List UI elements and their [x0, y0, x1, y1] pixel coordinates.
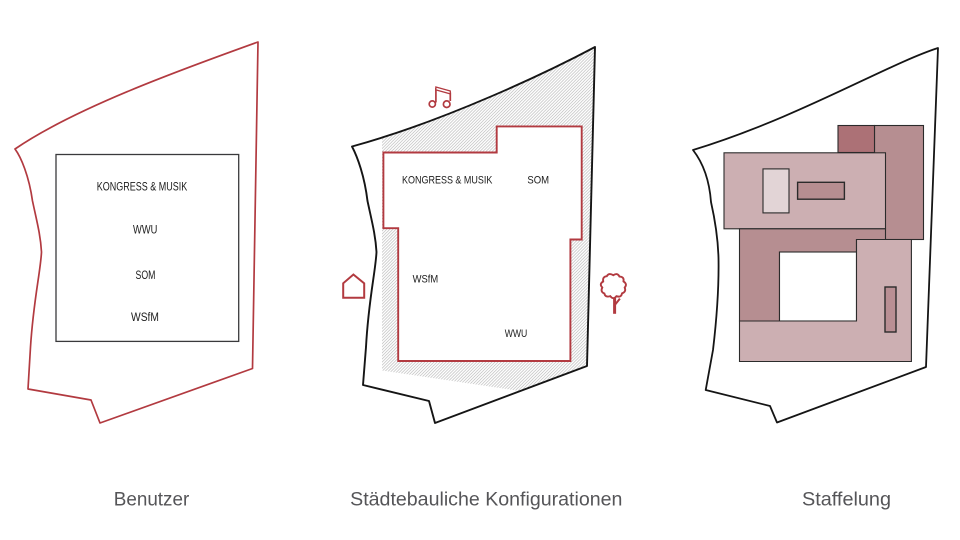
svg-text:WWU: WWU	[505, 328, 528, 340]
svg-text:WWU: WWU	[133, 225, 157, 237]
svg-text:SOM: SOM	[527, 175, 549, 187]
svg-text:KONGRESS & MUSIK: KONGRESS & MUSIK	[402, 175, 493, 187]
svg-text:WSfM: WSfM	[131, 312, 159, 324]
svg-text:Benutzer: Benutzer	[114, 489, 190, 510]
svg-text:KONGRESS & MUSIK: KONGRESS & MUSIK	[97, 181, 188, 193]
svg-text:Städtebauliche Konfigurationen: Städtebauliche Konfigurationen	[350, 489, 622, 510]
svg-text:WSfM: WSfM	[413, 274, 439, 286]
svg-text:SOM: SOM	[136, 270, 156, 282]
svg-text:Staffelung: Staffelung	[802, 489, 891, 510]
